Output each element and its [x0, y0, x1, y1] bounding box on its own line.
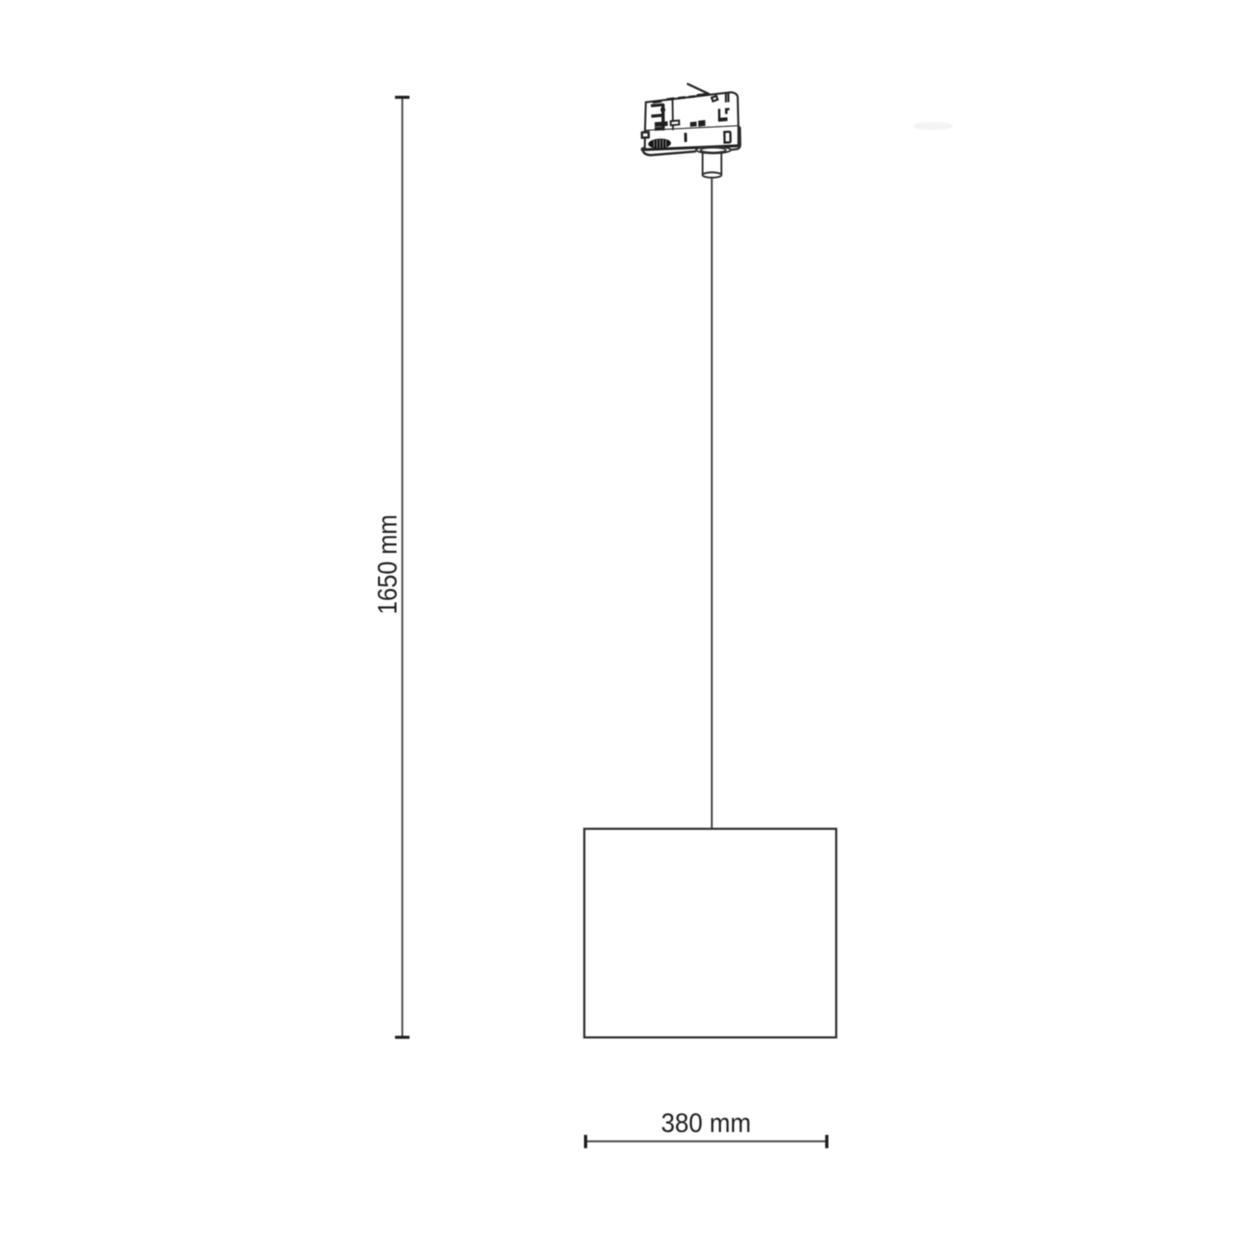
svg-text:1650 mm: 1650 mm: [373, 515, 403, 615]
svg-text:380 mm: 380 mm: [661, 1108, 751, 1138]
